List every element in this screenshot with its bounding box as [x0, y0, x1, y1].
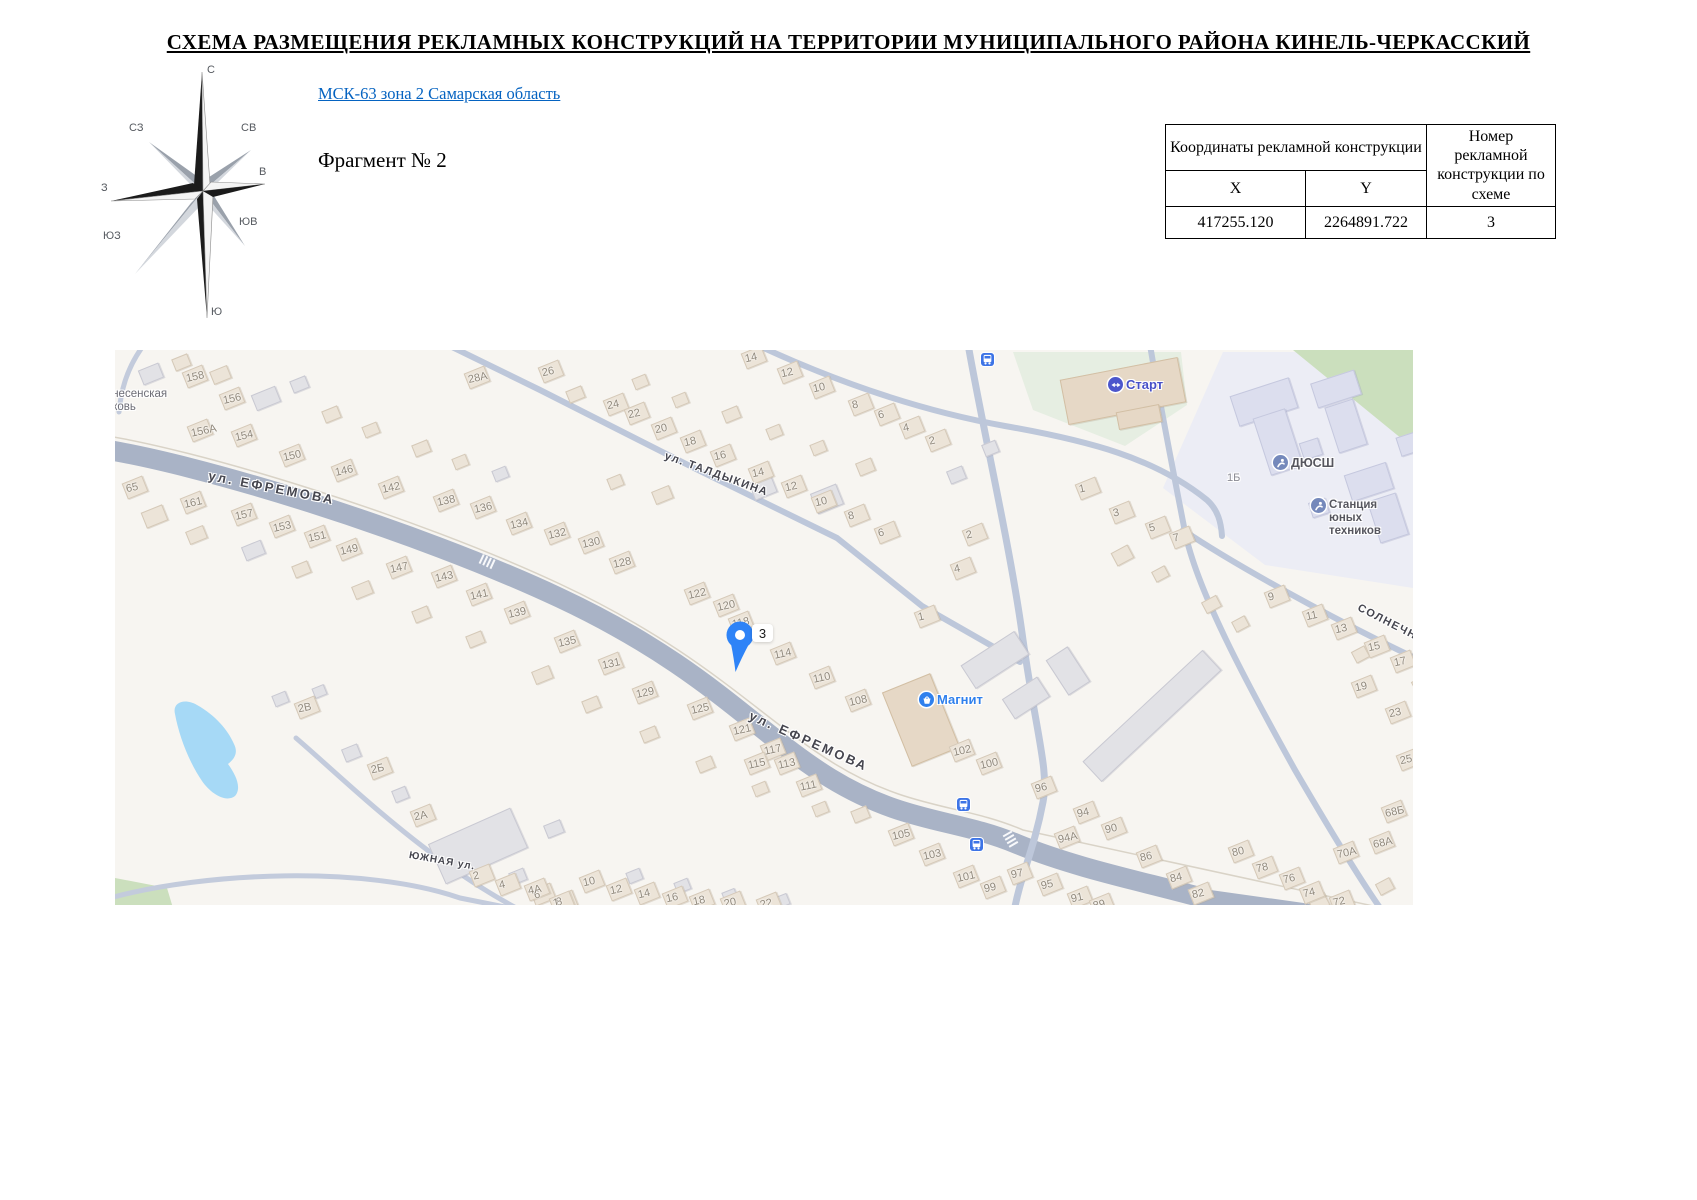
house-number: 26: [541, 365, 555, 379]
number-value-cell: 3: [1427, 206, 1556, 238]
house-number: 84: [1169, 871, 1183, 885]
compass-label-s: Ю: [211, 306, 222, 318]
bus-stop-icon[interactable]: [970, 838, 983, 851]
compass-label-ne: СВ: [241, 122, 256, 134]
house-number: 10: [812, 381, 826, 395]
poi-label[interactable]: ДЮСШ: [1291, 456, 1334, 470]
house-number: 20: [654, 422, 668, 436]
fragment-label: Фрагмент № 2: [318, 148, 447, 173]
house-number: 14: [744, 351, 758, 365]
house-number: 80: [1231, 845, 1245, 859]
house-number: 24: [606, 398, 620, 412]
house-number: 86: [1139, 850, 1153, 864]
house-number: 99: [983, 881, 997, 895]
bus-stop-icon[interactable]: [981, 353, 994, 366]
compass-label-se: ЮВ: [239, 216, 257, 228]
poi-label: 1Б: [1227, 472, 1240, 485]
house-number: 96: [1034, 781, 1048, 795]
house-number: 18: [692, 894, 706, 905]
page-title: СХЕМА РАЗМЕЩЕНИЯ РЕКЛАМНЫХ КОНСТРУКЦИЙ Н…: [0, 30, 1697, 55]
yuzhnaya-road-2: [115, 876, 520, 905]
msk-zone-link[interactable]: МСК-63 зона 2 Самарская область: [318, 84, 560, 104]
pond: [175, 702, 239, 799]
house-number: 13: [1334, 622, 1348, 636]
house-number: 12: [784, 480, 798, 494]
compass-rose-icon: С СВ В ЮВ Ю ЮЗ З СЗ: [103, 66, 268, 321]
x-value-cell: 417255.120: [1166, 206, 1306, 238]
house-number: 91: [1070, 891, 1084, 905]
house-number: 22: [759, 897, 773, 905]
col-x-header: X: [1166, 170, 1306, 206]
house-number: 95: [1040, 878, 1054, 892]
poi-label[interactable]: Станция юных техников: [1329, 499, 1413, 539]
y-value-cell: 2264891.722: [1306, 206, 1427, 238]
sport-poi-icon[interactable]: [1311, 498, 1326, 513]
house-number: 10: [582, 875, 596, 889]
house-number: 15: [1367, 640, 1381, 654]
start-poi-icon[interactable]: [1108, 377, 1123, 392]
house-number: 97: [1010, 867, 1024, 881]
house-number: 16: [713, 449, 727, 463]
compass-label-sw: ЮЗ: [103, 230, 121, 242]
house-number: 12: [609, 883, 623, 897]
house-number: 25: [1399, 753, 1413, 767]
compass-label-e: В: [259, 166, 266, 178]
house-number: 72: [1332, 895, 1346, 905]
house-number: 65: [125, 481, 139, 495]
compass-label-w: З: [101, 182, 108, 194]
house-number: 16: [665, 891, 679, 905]
house-number: 78: [1255, 861, 1269, 875]
col-y-header: Y: [1306, 170, 1427, 206]
house-number: 12: [780, 366, 794, 380]
sport-poi-icon[interactable]: [1273, 455, 1288, 470]
house-number: 11: [1305, 609, 1319, 623]
house-number: 89: [1092, 898, 1106, 905]
compass-label-nw: СЗ: [129, 122, 143, 134]
house-number: 74: [1302, 886, 1316, 900]
house-number: 22: [627, 407, 641, 421]
poi-label[interactable]: Старт: [1126, 378, 1163, 393]
magnit-poi-icon[interactable]: [919, 692, 934, 707]
house-number: 94: [1076, 806, 1090, 820]
document-page: СХЕМА РАЗМЕЩЕНИЯ РЕКЛАМНЫХ КОНСТРУКЦИЙ Н…: [0, 0, 1697, 1200]
house-number: 19: [1354, 680, 1368, 694]
house-number: 76: [1282, 872, 1296, 886]
house-number: 14: [637, 887, 651, 901]
house-number: 23: [1388, 706, 1402, 720]
house-number: 90: [1104, 822, 1118, 836]
number-header-cell: Номер рекламной конструкции по схеме: [1427, 125, 1556, 207]
compass-label-n: С: [207, 64, 215, 76]
bus-stop-icon[interactable]: [957, 798, 970, 811]
house-number: 10: [814, 495, 828, 509]
house-number: 17: [1393, 655, 1407, 669]
map[interactable]: 3 158156156А1541501461421381361341321301…: [115, 350, 1413, 905]
house-number: 20: [723, 896, 737, 905]
house-number: 14: [751, 466, 765, 480]
compass-star-icon: [103, 66, 268, 321]
poi-label[interactable]: Магнит: [937, 693, 983, 708]
house-number: 18: [683, 435, 697, 449]
house-number: 82: [1191, 887, 1205, 901]
coords-header-cell: Координаты рекламной конструкции: [1166, 125, 1427, 171]
placemark-number-label: 3: [752, 624, 773, 642]
coordinates-table: Координаты рекламной конструкции Номер р…: [1165, 124, 1556, 239]
poi-label: Вознесенская церковь: [115, 388, 167, 414]
